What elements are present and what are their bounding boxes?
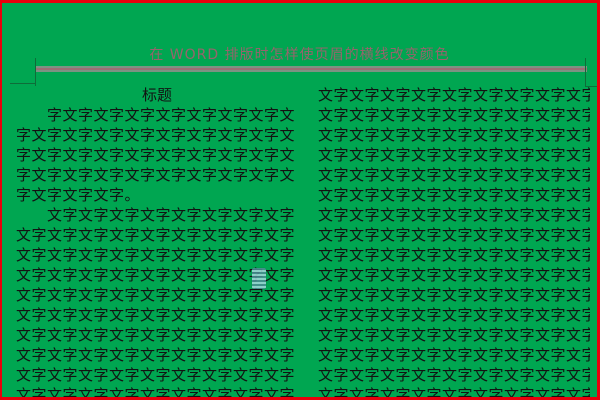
text-line: 文字文字文字文字文字文字文字文字文字	[318, 305, 590, 325]
text-line: 文字文字文字文字文字文字文字文字文字	[16, 305, 298, 325]
text-line: 文字文字文字文字文字文字文字文字文字	[16, 325, 298, 345]
paragraph-3: 文字文字文字文字文字文字文字文字文字文字文字文字文字文字文字文字文字文字文字文字…	[318, 85, 590, 400]
text-line: 字文字文字文字文字文字文字文字文字文	[16, 125, 298, 145]
text-line: 文字文字文字文字文字文字文字文字文字	[16, 385, 298, 400]
text-line: 文字文字文字文字文字文字文字文字文字	[318, 185, 590, 205]
paragraph-2: 文字文字文字文字文字文字文字文字文字文字文字文字文字文字文字文字文字文字文字文字…	[16, 205, 298, 400]
text-line: 文字文字文字文字文字文字文字文字	[16, 205, 298, 225]
text-line: 文字文字文字文字文字文字文字文字文字	[318, 385, 590, 400]
text-line: 文字文字文字文字文字文字文字文字文字	[318, 245, 590, 265]
text-line: 文字文字文字文字文字文字文字文字文字	[318, 145, 590, 165]
text-line: 字文字文字文字文字文字文字文字文字文	[16, 165, 298, 185]
text-line: 文字文字文字文字文字文字文字文字文字	[16, 345, 298, 365]
text-line: 文字文字文字文字文字文字文字文字文字	[318, 125, 590, 145]
margin-bracket-right-vertical	[585, 58, 586, 87]
document-page: 在 WORD 排版时怎样使页眉的横线改变颜色 标题 字文字文字文字文字文字文字文…	[0, 0, 600, 400]
left-text-column: 标题 字文字文字文字文字文字文字文字文字文字文字文字文字文字文字文字文字文字文字…	[16, 85, 298, 400]
text-line: 文字文字文字文字文字文字文字文字文字	[318, 85, 590, 105]
text-line: 文字文字文字文字文字文字文字文字文字	[318, 265, 590, 285]
text-line: 文字文字文字文字文字文字文字文字文字	[318, 205, 590, 225]
text-line: 文字文字文字文字文字文字文字文字文字	[318, 365, 590, 385]
section-heading: 标题	[16, 85, 298, 105]
header-rule-line	[35, 66, 587, 72]
text-line: 文字文字文字文字文字文字文字文字文字	[318, 285, 590, 305]
text-line: 字文字文字文字。	[16, 185, 298, 205]
margin-bracket-left-vertical	[35, 58, 36, 86]
text-line: 文字文字文字文字文字文字文字文字文字	[318, 325, 590, 345]
text-line: 文字文字文字文字文字文字文字文字文字	[16, 365, 298, 385]
margin-bracket-left-horizontal	[10, 83, 36, 84]
text-line: 文字文字文字文字文字文字文字文字文字	[318, 105, 590, 125]
text-line: 字文字文字文字文字文字文字文字文	[16, 105, 298, 125]
right-text-column: 文字文字文字文字文字文字文字文字文字文字文字文字文字文字文字文字文字文字文字文字…	[318, 85, 590, 400]
text-line: 文字文字文字文字文字文字文字文字文字	[16, 225, 298, 245]
text-line: 文字文字文字文字文字文字文字文字文字	[318, 165, 590, 185]
text-line: 字文字文字文字文字文字文字文字文字文	[16, 145, 298, 165]
text-line: 文字文字文字文字文字文字文字文字文字	[318, 225, 590, 245]
text-line: 文字文字文字文字文字文字文字文字文字	[318, 345, 590, 365]
header-title: 在 WORD 排版时怎样使页眉的横线改变颜色	[2, 46, 597, 64]
text-line: 文字文字文字文字文字文字文字文字文字	[16, 245, 298, 265]
paragraph-1: 字文字文字文字文字文字文字文字文字文字文字文字文字文字文字文字文字文字文字文字文…	[16, 105, 298, 205]
document-icon	[252, 268, 266, 289]
